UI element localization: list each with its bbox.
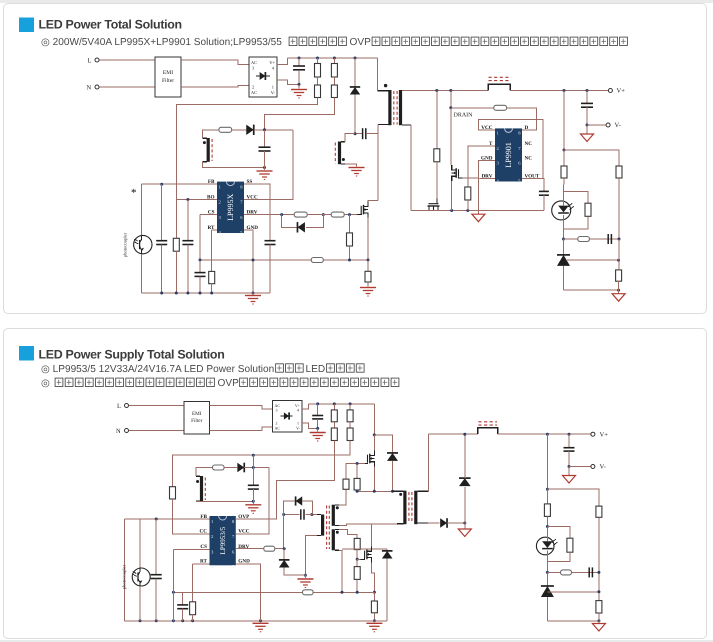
svg-text:AC: AC: [251, 90, 257, 95]
svg-text:1: 1: [272, 85, 274, 90]
svg-text:V-: V-: [615, 122, 621, 129]
svg-text:T: T: [489, 141, 493, 147]
svg-text:N: N: [116, 428, 121, 435]
svg-text:NC: NC: [525, 141, 533, 147]
svg-text:VOUT: VOUT: [525, 173, 540, 179]
svg-text:VCC: VCC: [481, 125, 492, 131]
svg-text:FB: FB: [208, 179, 215, 185]
svg-text:DRAIN: DRAIN: [454, 112, 474, 118]
svg-text:OVP: OVP: [238, 514, 250, 520]
svg-text:CC: CC: [200, 529, 208, 535]
svg-text:AC: AC: [275, 426, 281, 431]
svg-text:V-: V-: [271, 90, 276, 95]
svg-text:LP995X: LP995X: [226, 194, 235, 221]
svg-text:RT: RT: [200, 559, 208, 565]
svg-text:FB: FB: [200, 514, 207, 520]
svg-text:AC: AC: [251, 60, 257, 65]
svg-text:DRV: DRV: [481, 173, 492, 179]
svg-text:Filter: Filter: [162, 78, 174, 84]
svg-text:2: 2: [252, 85, 254, 90]
svg-text:V-: V-: [296, 426, 301, 431]
svg-text:NC: NC: [525, 155, 533, 161]
svg-text:LED Power Total Solution: LED Power Total Solution: [39, 18, 182, 32]
svg-text:LP9901: LP9901: [504, 142, 513, 167]
svg-text:◎: ◎: [41, 378, 50, 389]
svg-text:EMI: EMI: [192, 411, 202, 417]
svg-text:GND: GND: [481, 155, 493, 161]
svg-text:LP9953/5: LP9953/5: [219, 526, 227, 554]
svg-text:L: L: [88, 57, 92, 64]
svg-text:OVP: OVP: [218, 378, 240, 389]
svg-text:V-: V-: [600, 464, 606, 471]
svg-text:◎ 200W/5V40A LP995X+LP9901 Sol: ◎ 200W/5V40A LP995X+LP9901 Solution;LP99…: [41, 37, 282, 48]
svg-text:VCC: VCC: [238, 529, 249, 535]
svg-text:3: 3: [276, 408, 278, 413]
svg-text:LED: LED: [306, 364, 326, 375]
svg-text:LED Power Supply Total Solutio: LED Power Supply Total Solution: [39, 347, 225, 361]
svg-text:EMI: EMI: [163, 70, 173, 76]
svg-text:V+: V+: [269, 60, 275, 65]
svg-text:*: *: [131, 187, 137, 199]
svg-text:CS: CS: [200, 544, 207, 550]
svg-text:D: D: [525, 125, 529, 131]
svg-text:DRV: DRV: [238, 544, 249, 550]
svg-text:CS: CS: [208, 209, 215, 215]
svg-text:OVP: OVP: [350, 37, 372, 48]
svg-text:L: L: [117, 403, 121, 410]
svg-text:4: 4: [297, 408, 299, 413]
svg-text:Filter: Filter: [191, 418, 203, 424]
svg-text:N: N: [87, 84, 92, 91]
svg-text:V+: V+: [600, 431, 609, 438]
svg-text:RT: RT: [207, 225, 215, 231]
svg-text:V+: V+: [617, 88, 626, 95]
svg-text:photocoupler: photocoupler: [123, 232, 128, 257]
svg-text:BO: BO: [207, 194, 215, 200]
svg-text:photocoupler: photocoupler: [122, 564, 127, 589]
svg-text:◎ LP9953/5 12V33A/24V16.7A LED: ◎ LP9953/5 12V33A/24V16.7A LED Power Sol…: [41, 364, 274, 375]
